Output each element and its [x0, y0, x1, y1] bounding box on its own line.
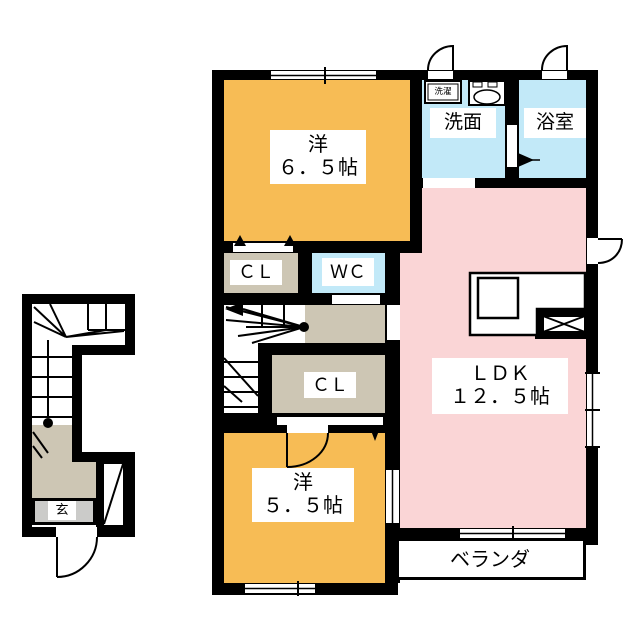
label-western-6-5: 洋 ６．５帖	[270, 130, 366, 184]
closet1-door-strip	[233, 243, 293, 252]
room-name: ＣＬ	[238, 262, 274, 283]
wall-right	[586, 70, 598, 545]
wall-west1-washroom	[410, 70, 422, 253]
hall-ldk-door-gap	[387, 305, 400, 340]
fixture-name: 洗濯	[434, 87, 451, 97]
porch-wall-right-lower	[125, 452, 135, 537]
floor-plan: 洋 ６．５帖 洋 ５．５帖 ＬＤＫ １２．５帖 洗面 浴室 ＷＣ ＣＬ ＣＬ ベ…	[0, 0, 640, 640]
room-name: 洗面	[444, 112, 482, 134]
awning-arc-1	[428, 46, 453, 70]
stairs-fan	[226, 307, 304, 343]
wall-hall-cl2	[258, 343, 400, 355]
label-washroom: 洗面	[430, 108, 496, 138]
room-size: １２．５帖	[450, 386, 550, 409]
porch-fan	[34, 304, 124, 337]
porch-wall-mid	[72, 345, 82, 462]
awning-window-1	[428, 71, 453, 79]
stairs-break	[224, 358, 258, 402]
porch-treads	[32, 357, 72, 417]
wc-door-gap	[332, 295, 380, 304]
label-closet1: ＣＬ	[230, 260, 282, 285]
wall-left	[212, 70, 224, 595]
wall-bottom-left	[212, 583, 398, 595]
room-name: 玄	[55, 503, 68, 518]
porch-wall-left	[22, 294, 32, 537]
label-western-5-5: 洋 ５．５帖	[252, 468, 354, 522]
room-name: 洋	[293, 472, 313, 495]
label-veranda: ベランダ	[410, 547, 570, 573]
label-entrance: 玄	[48, 501, 76, 520]
stairs-fan-dividers	[246, 305, 304, 327]
room-size: ６．５帖	[278, 157, 358, 180]
porch-door-gap	[56, 527, 97, 537]
sink-box	[468, 80, 506, 106]
label-ldk: ＬＤＫ １２．５帖	[432, 358, 568, 414]
ldk-entry-door-gap	[587, 238, 598, 264]
room-size: ５．５帖	[263, 495, 343, 518]
room-name: ＬＤＫ	[470, 363, 530, 386]
washroom-door-gap	[423, 178, 475, 188]
room-name: 洋	[308, 134, 328, 157]
label-bathroom: 浴室	[524, 108, 586, 138]
ldk-entry-door-arc	[598, 239, 622, 263]
porch-wall-top	[22, 294, 135, 304]
hallway-area	[305, 305, 385, 343]
room-name: ベランダ	[450, 549, 530, 572]
label-washer: 洗濯	[426, 84, 460, 100]
porch-fan-dividers	[88, 304, 125, 330]
awning-window-2	[542, 71, 567, 79]
room-name: 浴室	[536, 112, 574, 134]
room-name: ＷＣ	[330, 262, 366, 283]
porch-slope-box	[102, 462, 125, 527]
label-closet2: ＣＬ	[304, 372, 356, 398]
kitchen-duct-block	[535, 309, 598, 339]
west2-door-gap	[287, 423, 328, 433]
label-wc: ＷＣ	[322, 258, 374, 286]
bathroom-slide-door	[507, 125, 517, 167]
west2-ldk-slide-door	[386, 470, 399, 523]
wall-top	[212, 70, 598, 80]
stairhall-floor-lower	[32, 462, 102, 498]
room-ldk-area-upper	[422, 188, 586, 241]
stairs-treads	[224, 362, 258, 407]
room-name: ＣＬ	[312, 375, 348, 396]
awning-arc-2	[542, 46, 567, 70]
porch-door-arc	[57, 537, 97, 577]
